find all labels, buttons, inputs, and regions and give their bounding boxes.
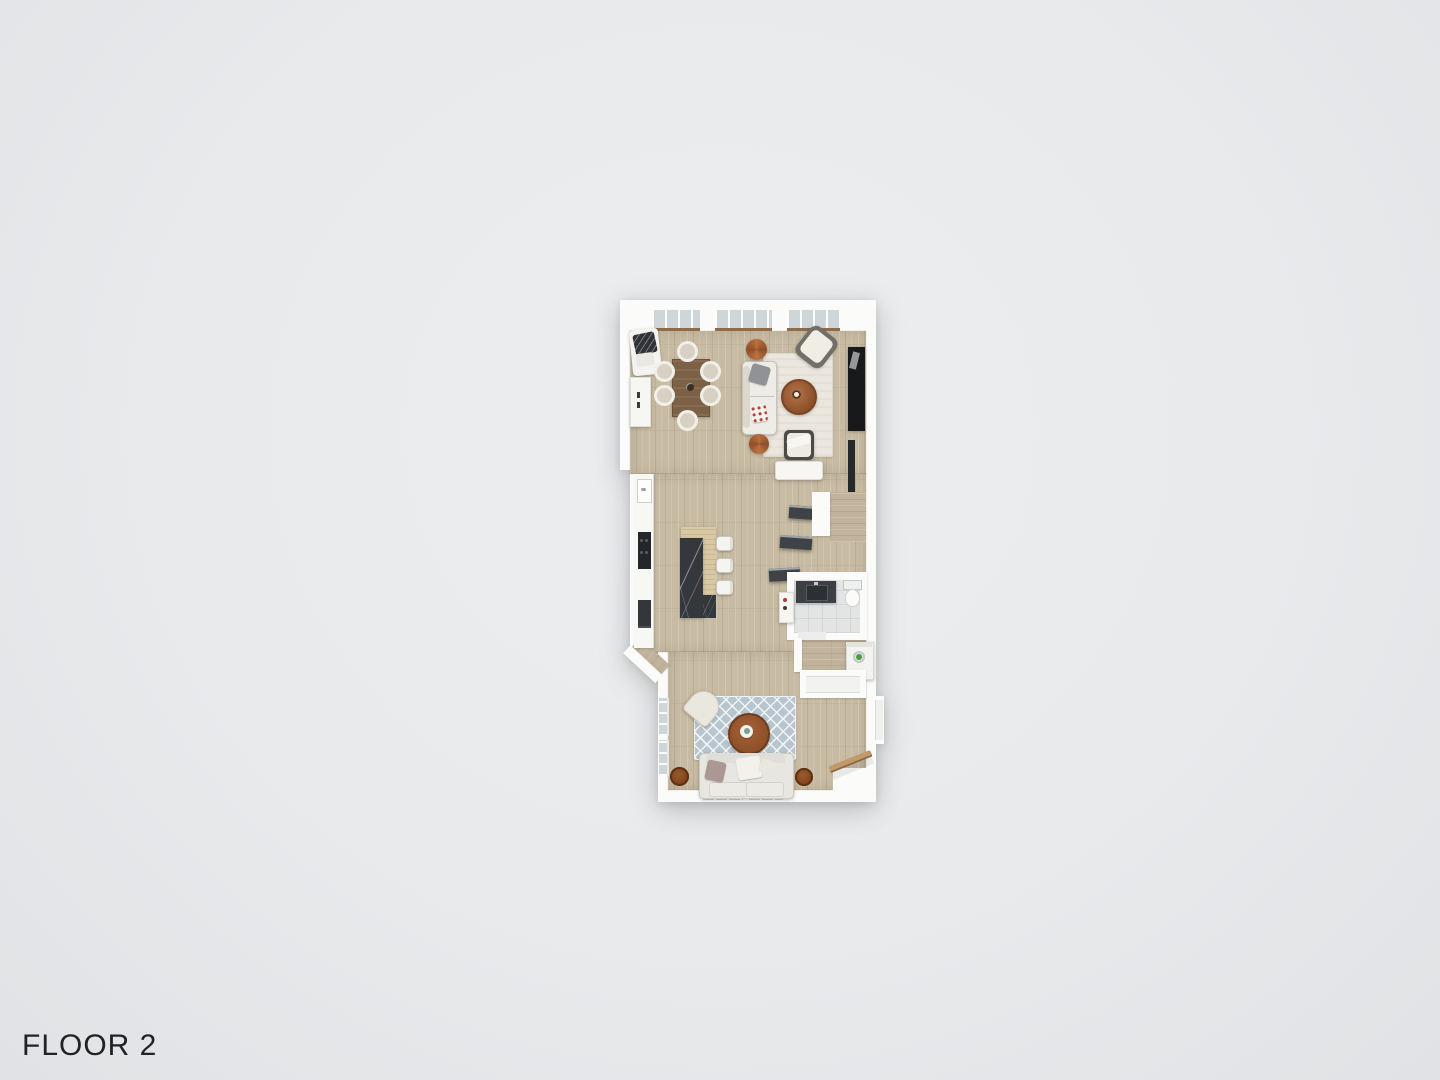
bar-stool-1 bbox=[716, 536, 733, 551]
pouf-bottom bbox=[749, 434, 769, 454]
bar-stool-3 bbox=[716, 580, 733, 595]
window-left-1 bbox=[659, 698, 669, 736]
floor-plan bbox=[0, 0, 1440, 1080]
cabinet-red-accent bbox=[783, 598, 787, 602]
dining-chair-right-1 bbox=[703, 364, 718, 379]
dining-chair-bottom bbox=[680, 413, 695, 428]
vanity-faucet bbox=[814, 582, 818, 585]
stair-closet bbox=[812, 492, 830, 536]
toilet-bowl bbox=[845, 589, 860, 607]
dining-chair-top bbox=[680, 344, 695, 359]
media-shelf bbox=[848, 440, 855, 492]
family-pillow-mauve bbox=[704, 759, 727, 783]
hall-closet-interior bbox=[806, 676, 860, 693]
table-centerpiece bbox=[686, 383, 694, 391]
family-sofa-seat-2 bbox=[746, 782, 784, 797]
burner-2 bbox=[645, 539, 648, 542]
side-table-right bbox=[795, 768, 813, 786]
scene: FLOOR 2 bbox=[0, 0, 1440, 1080]
dining-chair-right-2 bbox=[703, 388, 718, 403]
bar-stool-2 bbox=[716, 558, 733, 573]
window-top-2 bbox=[715, 310, 772, 331]
kitchen-island-marble-2 bbox=[703, 595, 716, 618]
dining-chair-left-1 bbox=[657, 364, 672, 379]
stair-tread-1 bbox=[789, 505, 814, 520]
floor-stair-landing-zone bbox=[830, 492, 866, 542]
media-bench bbox=[775, 461, 823, 480]
kitchen-sink bbox=[637, 479, 652, 503]
burner-4 bbox=[645, 551, 648, 554]
washer-controls bbox=[846, 642, 872, 647]
kitchen-island-marble bbox=[680, 538, 703, 618]
cabinet-handle-1 bbox=[637, 392, 640, 398]
lounge-pillow bbox=[635, 352, 655, 367]
sofa-cushion-line bbox=[750, 396, 774, 397]
oven bbox=[638, 600, 651, 628]
floor-label: FLOOR 2 bbox=[22, 1029, 157, 1063]
hall-wall-stub bbox=[794, 638, 802, 672]
side-table-left bbox=[670, 767, 689, 786]
family-sofa-seat-1 bbox=[709, 782, 747, 797]
kitchen-cabinet-upper bbox=[630, 377, 651, 427]
sofa-pillow-pattern bbox=[750, 404, 769, 424]
stair-tread-2 bbox=[780, 535, 813, 550]
washer-door-green bbox=[856, 654, 862, 660]
sink-faucet bbox=[641, 488, 646, 491]
island-bar-right bbox=[703, 538, 716, 595]
cabinet-dark-accent bbox=[783, 606, 787, 610]
coffee-table-dish bbox=[792, 390, 801, 399]
window-left-2 bbox=[659, 740, 669, 776]
window-top-1 bbox=[652, 310, 700, 331]
pouf-top bbox=[746, 339, 767, 360]
vanity-sink bbox=[806, 585, 828, 601]
cabinet-handle-2 bbox=[637, 402, 640, 408]
burner-3 bbox=[640, 551, 643, 554]
right-niche-interior bbox=[875, 700, 883, 740]
bathroom-door-gap bbox=[798, 632, 826, 640]
burner-1 bbox=[640, 539, 643, 542]
family-table-sprig bbox=[744, 728, 750, 734]
dining-chair-left-2 bbox=[657, 388, 672, 403]
